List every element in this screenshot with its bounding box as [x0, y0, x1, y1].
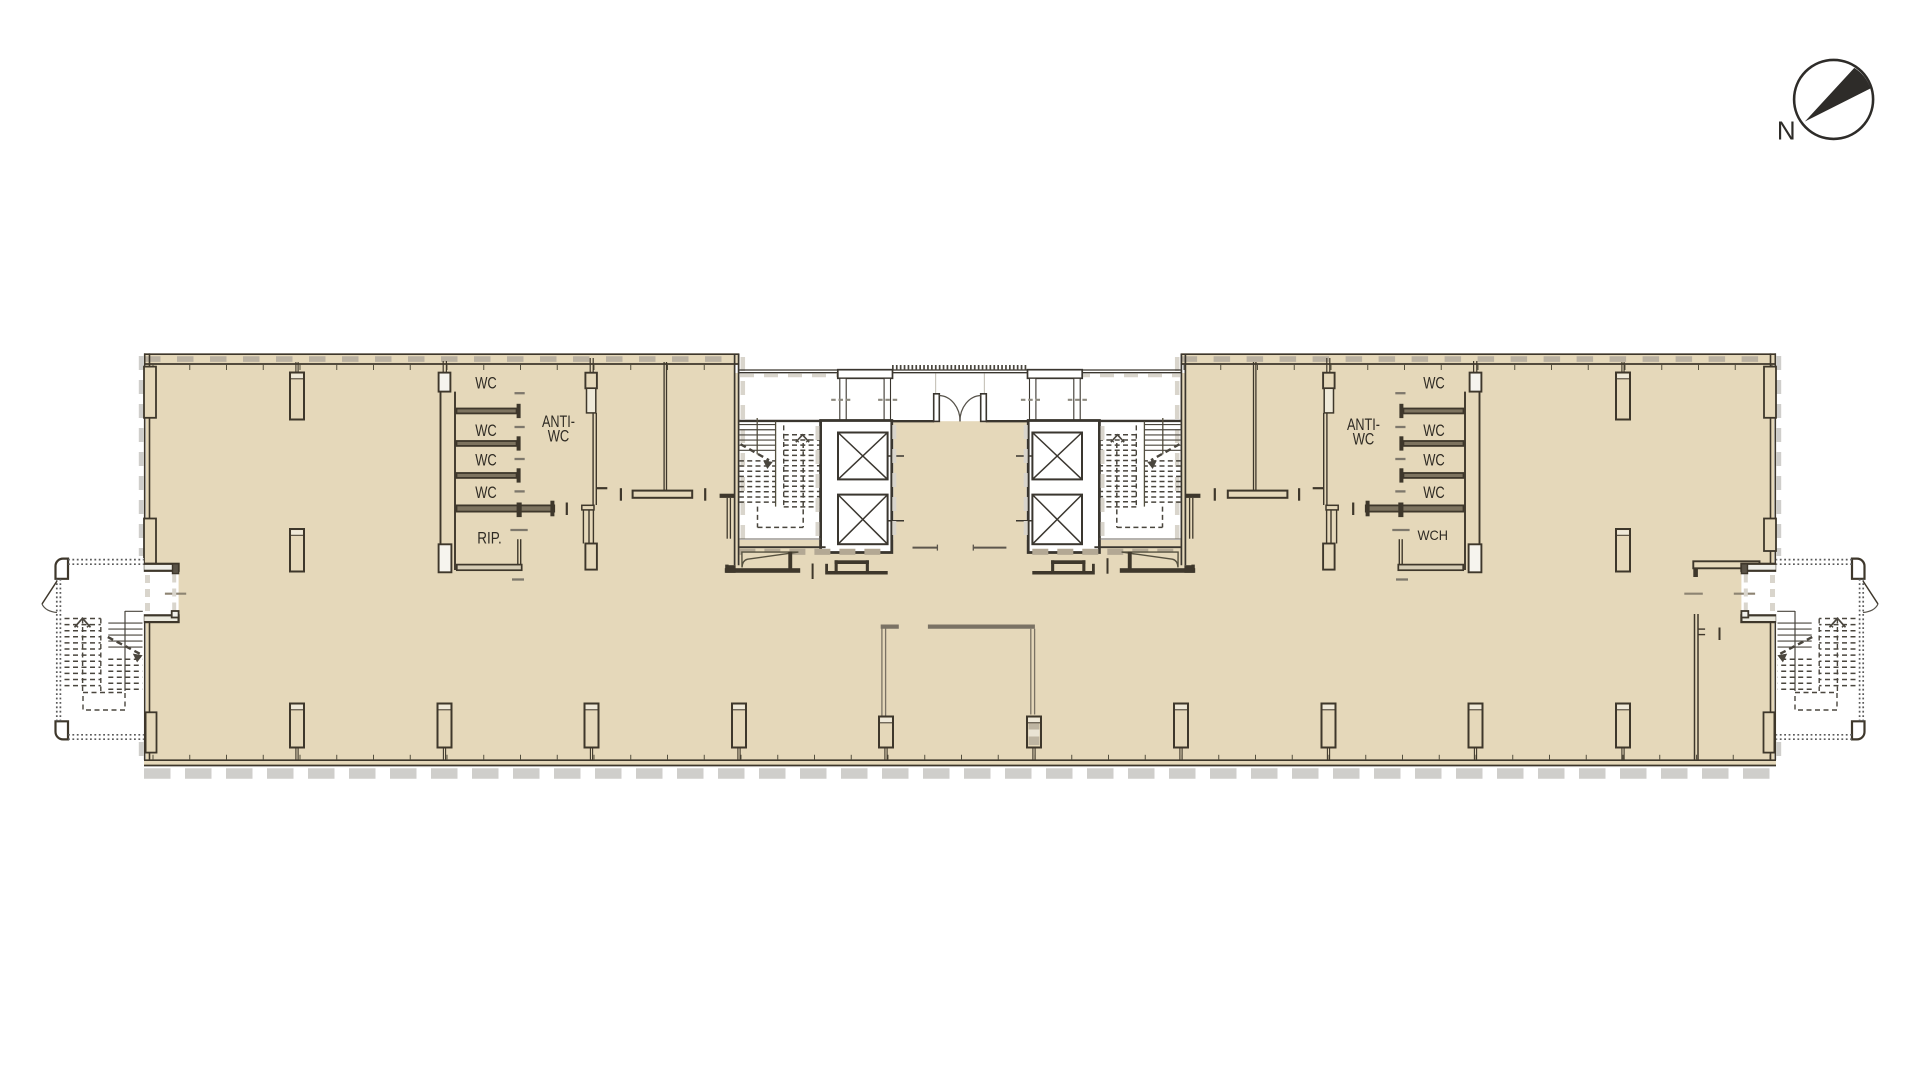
svg-text:WC: WC: [475, 422, 497, 440]
svg-text:WC: WC: [475, 484, 497, 502]
svg-text:WCH: WCH: [1417, 527, 1448, 543]
svg-text:WC: WC: [1423, 422, 1445, 440]
svg-text:WC: WC: [475, 374, 497, 392]
svg-text:RIP.: RIP.: [477, 530, 502, 548]
svg-text:WC: WC: [475, 452, 497, 470]
svg-text:WC: WC: [1353, 430, 1375, 448]
svg-text:WC: WC: [1423, 374, 1445, 392]
svg-text:WC: WC: [1423, 452, 1445, 470]
svg-text:N: N: [1777, 116, 1796, 146]
svg-text:WC: WC: [548, 427, 570, 445]
svg-text:WC: WC: [1423, 484, 1445, 502]
